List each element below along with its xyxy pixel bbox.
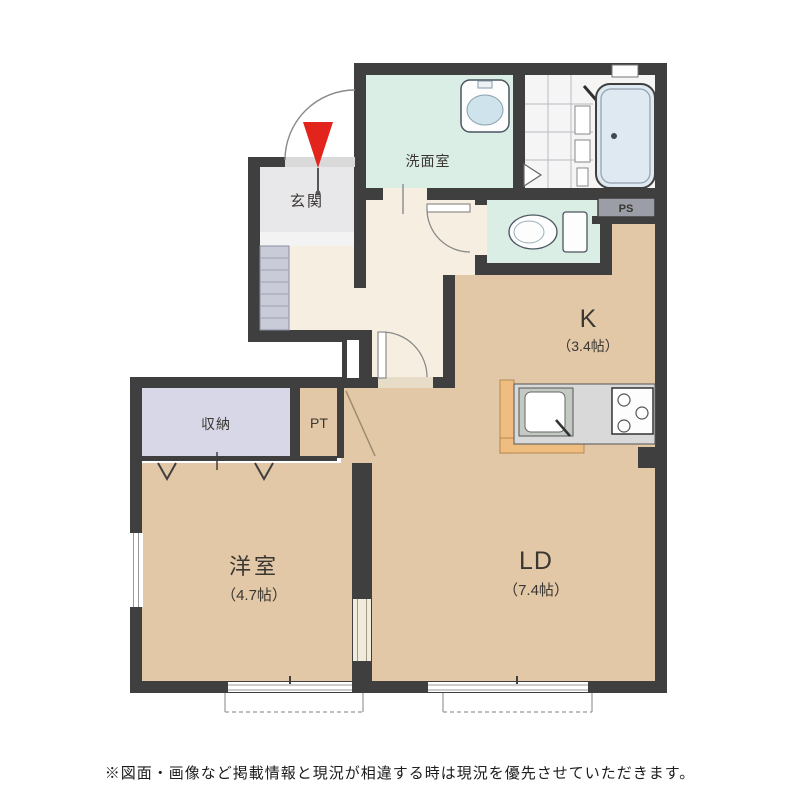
- bathtub-icon: [596, 84, 655, 188]
- label-western-room-size: （4.7帖）: [221, 587, 287, 604]
- wall-counter-pillar: [638, 447, 667, 468]
- stove-icon: [612, 388, 653, 434]
- label-living-dining: LD: [519, 547, 553, 575]
- label-closet: 収納: [201, 416, 231, 432]
- balcony-outlines: [225, 693, 592, 712]
- western-left-window: [129, 533, 143, 607]
- label-washroom: 洗面室: [406, 153, 451, 169]
- label-pipe-space: PS: [619, 203, 634, 215]
- wall-closet-pantry: [290, 388, 300, 458]
- wall-closet-top: [130, 377, 378, 388]
- label-pantry: PT: [310, 415, 328, 431]
- label-genkan: 玄関: [290, 193, 324, 210]
- label-kitchen-size: （3.4帖）: [557, 338, 618, 354]
- floor-plan-page: 玄関 洗面室 PS K （3.4帖） 収納 PT 洋室 （4.7帖） LD （7…: [0, 0, 800, 800]
- toilet-tank: [563, 212, 587, 252]
- wall-closet-bottom-line: [142, 456, 337, 461]
- disclaimer-text: ※図面・画像など掲載情報と現況が相違する時は現況を優先させていただきます。: [0, 762, 800, 783]
- wall-washroom-left: [354, 63, 366, 288]
- toilet-door-opening: [475, 205, 487, 255]
- label-kitchen: K: [580, 305, 597, 333]
- western-ld-sliding-door: [353, 599, 371, 661]
- floor-plan-drawing: 玄関 洗面室 PS K （3.4帖） 収納 PT 洋室 （4.7帖） LD （7…: [0, 0, 800, 800]
- ld-door-leaf: [378, 332, 386, 378]
- shoe-cabinet: [260, 246, 289, 330]
- room-kitchen-floor: [612, 224, 655, 275]
- wall-wet-bottom-a: [354, 188, 383, 200]
- washroom-door-opening: [383, 188, 427, 200]
- room-kitchen-ld-floor: [455, 275, 655, 681]
- wall-genkan-left: [248, 157, 260, 342]
- wall-right: [655, 63, 667, 693]
- hall-wall-window: [347, 340, 359, 378]
- wall-hall-kitchen: [443, 275, 455, 388]
- label-western-room: 洋室: [229, 554, 279, 579]
- wall-toilet-bottom: [475, 263, 612, 275]
- wall-washroom-bath: [513, 75, 525, 190]
- wall-toilet-left-a: [475, 197, 487, 205]
- toilet-door-leaf: [427, 204, 470, 212]
- kitchen-counter: [500, 380, 655, 453]
- genkan-step: [260, 232, 354, 246]
- wall-toilet-right: [600, 216, 612, 275]
- toilet-icon: [509, 215, 557, 249]
- washbasin-icon: [461, 80, 509, 132]
- hall-opening: [354, 288, 368, 330]
- bath-fixtures: [575, 106, 590, 186]
- bathtub-drain: [611, 133, 617, 139]
- label-living-dining-size: （7.4帖）: [503, 582, 569, 599]
- wall-pantry-right: [337, 388, 344, 458]
- ld-door-threshold: [378, 377, 433, 388]
- kitchen-sink-icon: [519, 388, 573, 436]
- bath-window: [612, 65, 638, 77]
